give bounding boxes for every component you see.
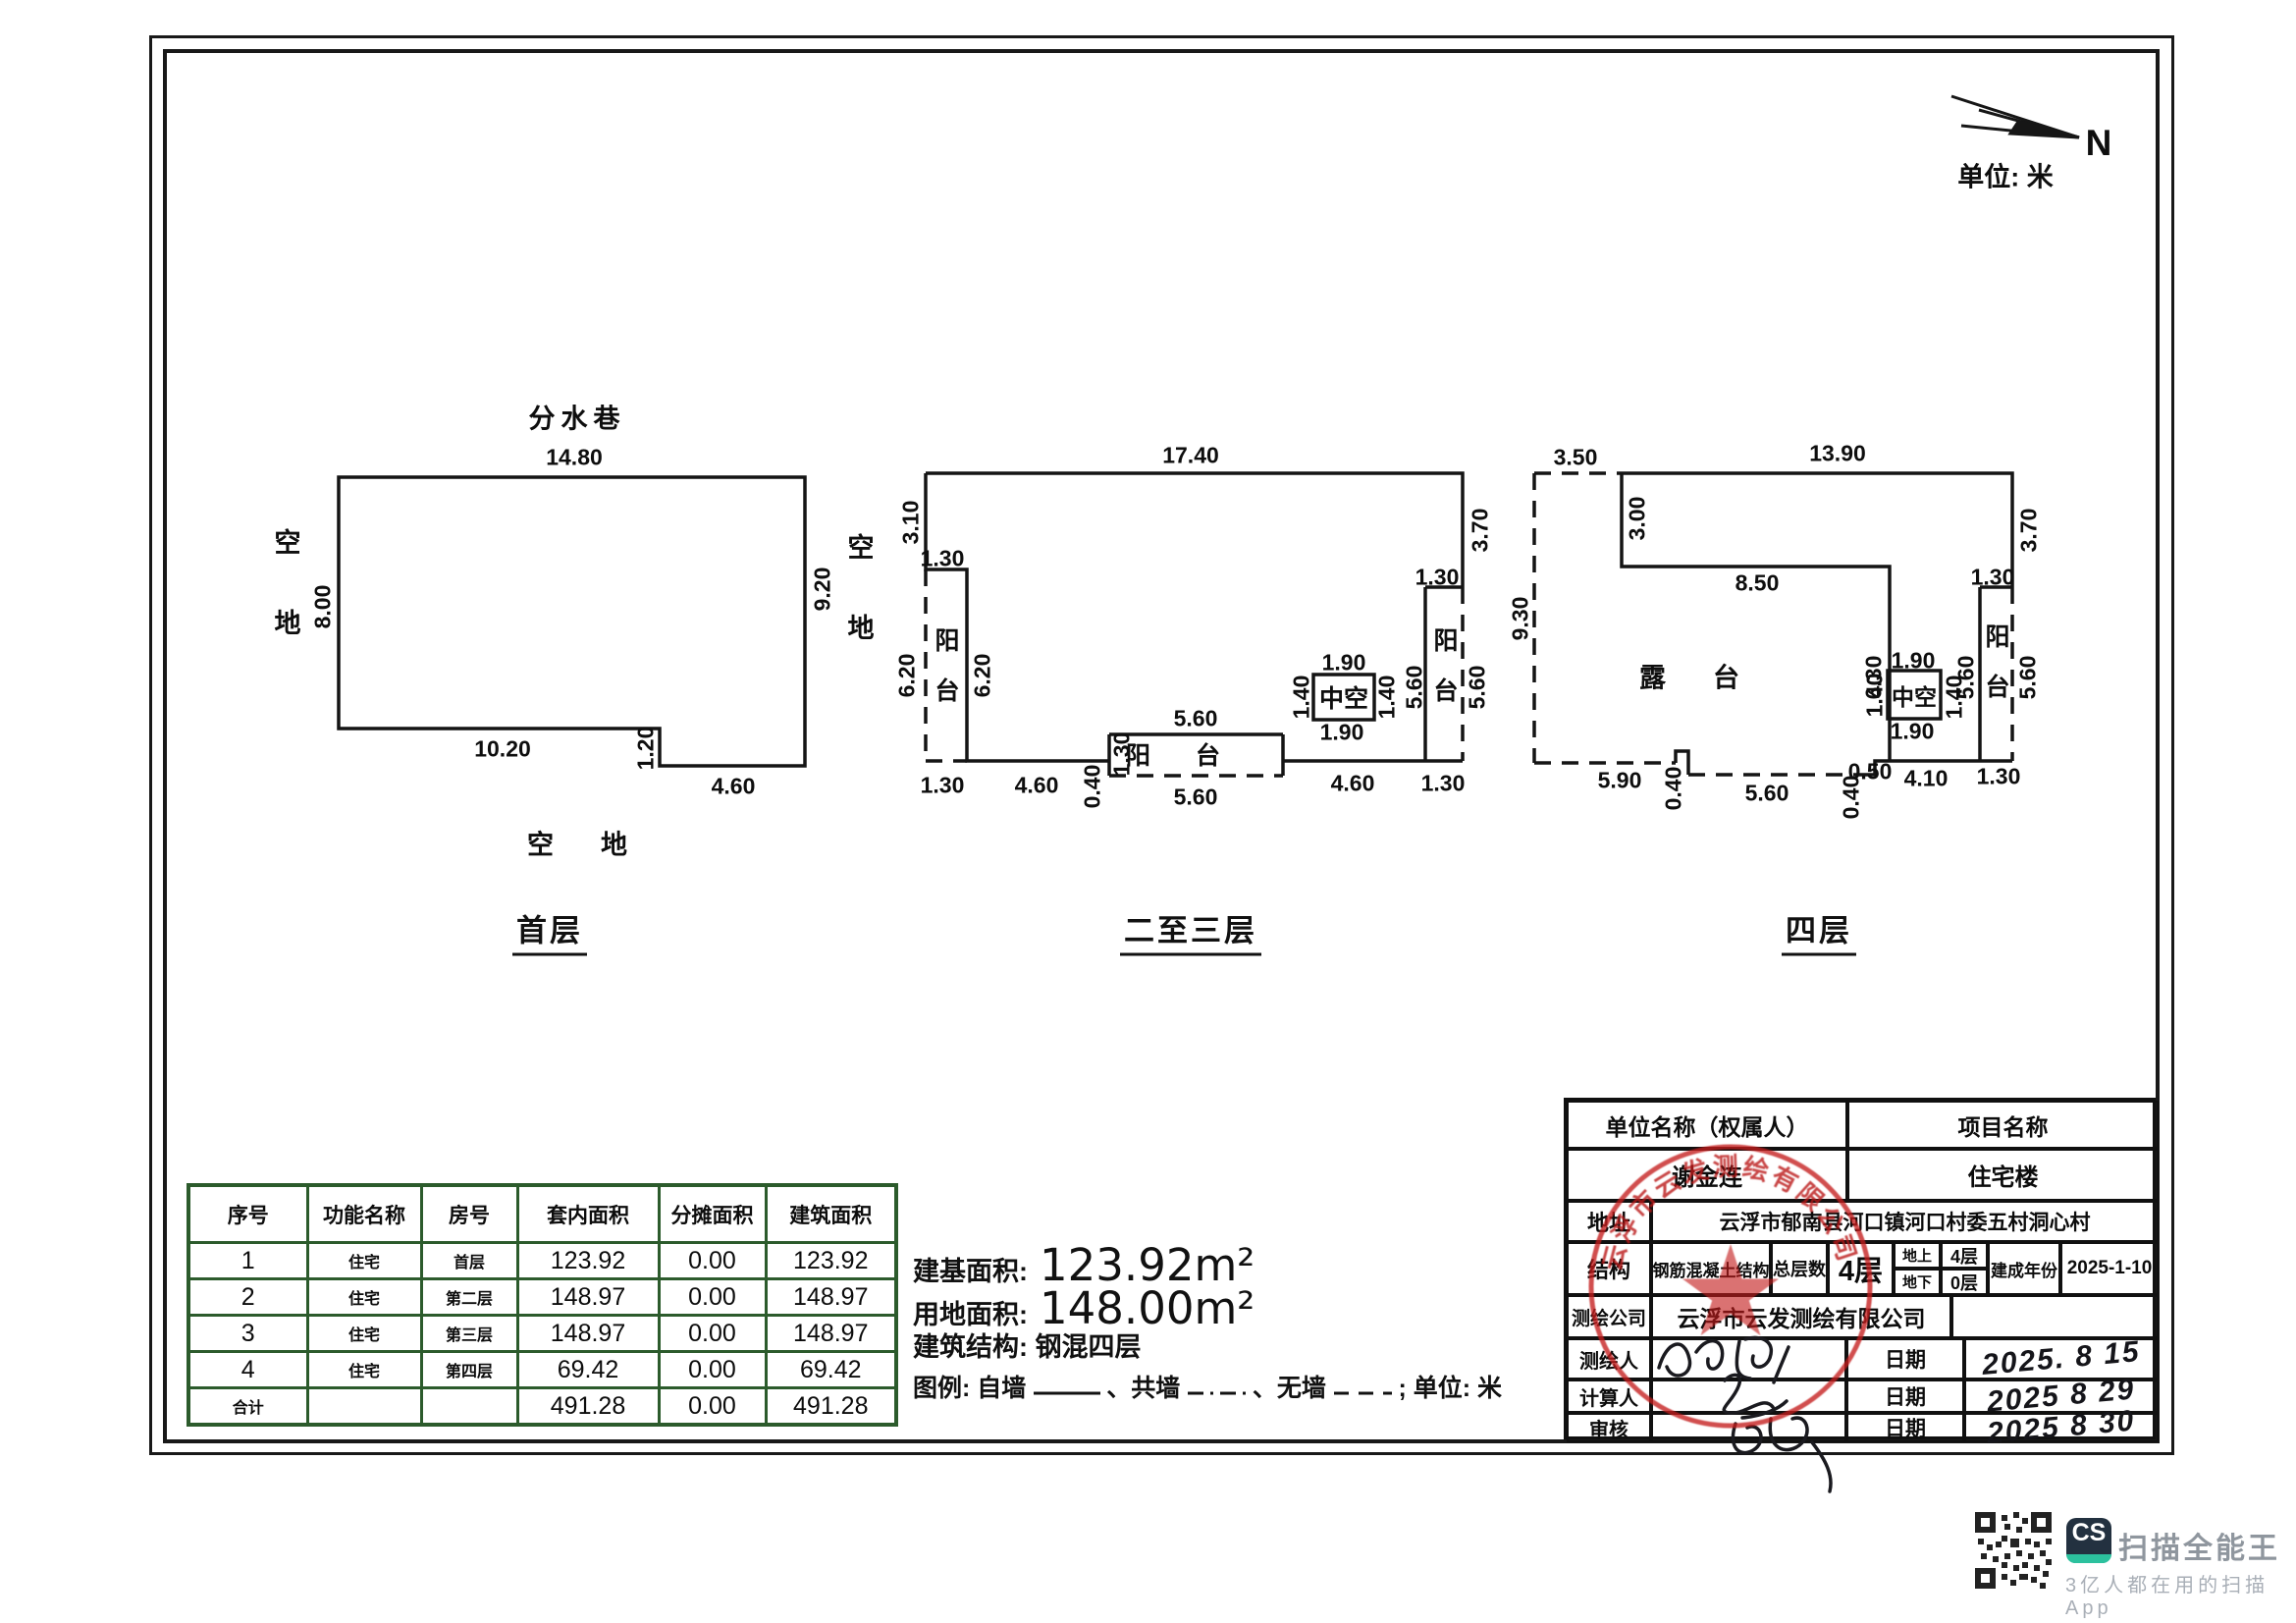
camscanner-logo-icon: CS xyxy=(2066,1518,2111,1563)
qr-code xyxy=(1975,1512,2052,1589)
scanner-app-tagline: 3亿人都在用的扫描App xyxy=(2065,1569,2296,1620)
scanned-floorplan-sheet: N 单位: 米 分水巷 14.80 8.00 9.20 10.20 1.20 4… xyxy=(0,0,2296,1623)
logo-text: CS xyxy=(2066,1519,2111,1547)
handwritten-signatures xyxy=(0,0,2296,1623)
logo-teal-bar xyxy=(2066,1554,2111,1563)
scanner-app-name: 扫描全能王 xyxy=(2118,1524,2280,1567)
